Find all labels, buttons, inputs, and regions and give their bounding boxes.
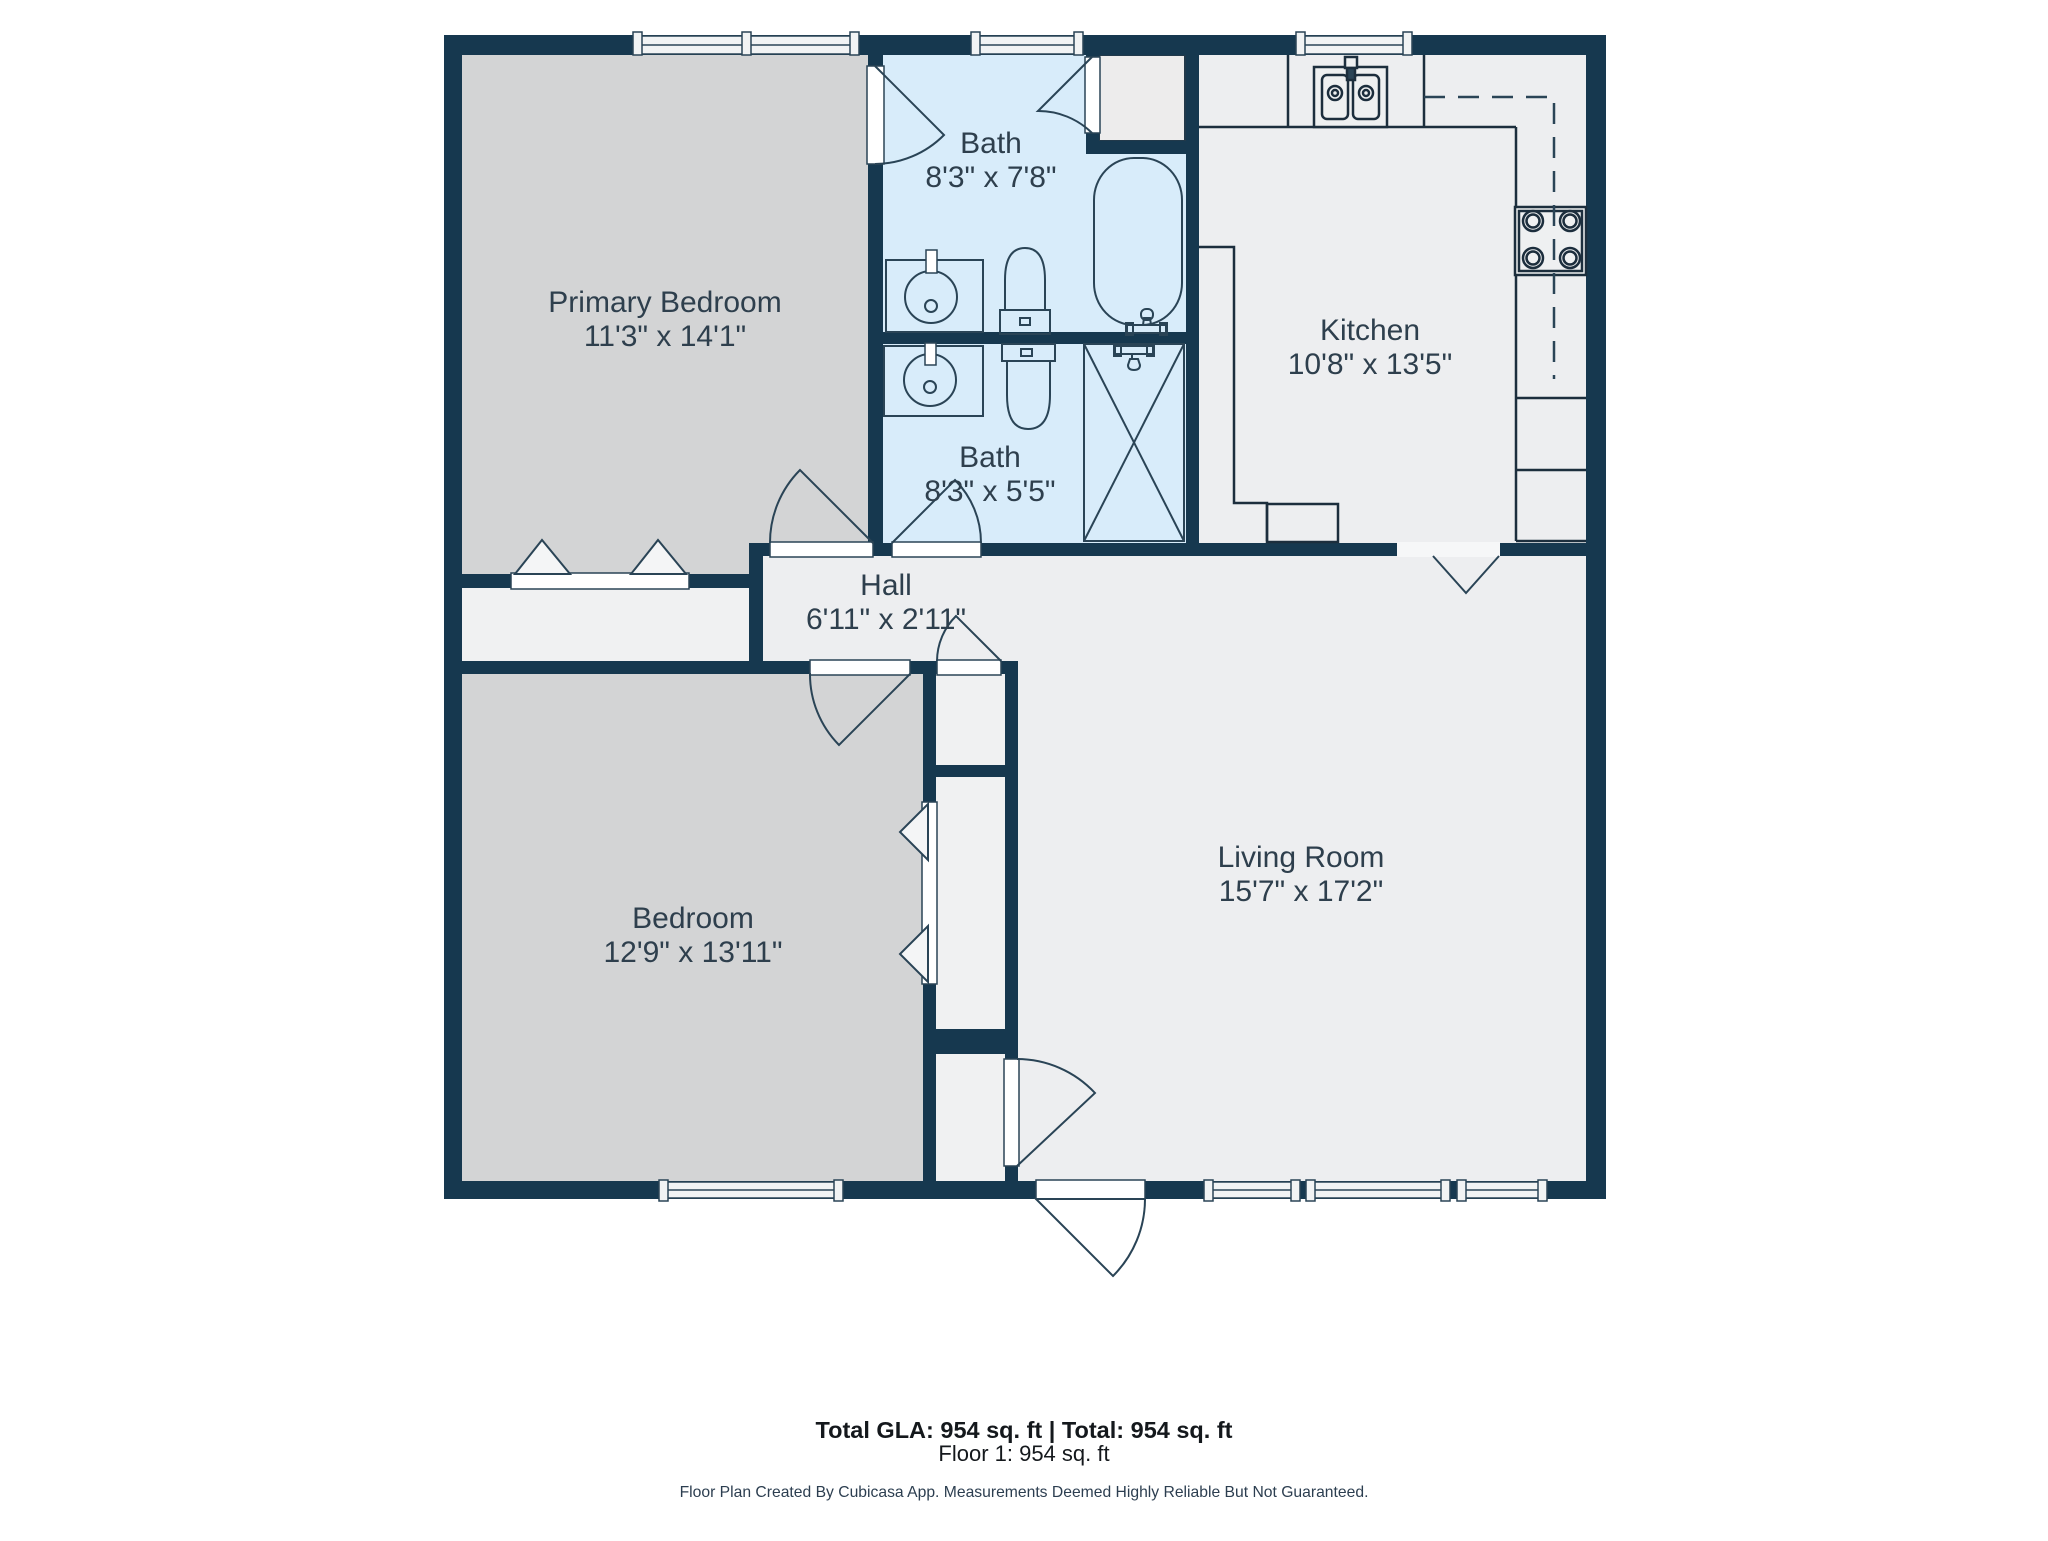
svg-text:11'3" x 14'1": 11'3" x 14'1" — [584, 320, 746, 353]
svg-text:Living Room: Living Room — [1218, 841, 1385, 874]
svg-text:Floor Plan Created By Cubicasa: Floor Plan Created By Cubicasa App. Meas… — [680, 1484, 1369, 1501]
svg-text:Primary Bedroom: Primary Bedroom — [548, 286, 781, 319]
svg-text:Kitchen: Kitchen — [1320, 314, 1420, 347]
svg-text:Hall: Hall — [860, 569, 912, 602]
svg-text:Total GLA: 954 sq. ft | Total:: Total GLA: 954 sq. ft | Total: 954 sq. f… — [816, 1417, 1233, 1443]
svg-text:8'3" x 5'5": 8'3" x 5'5" — [924, 475, 1055, 508]
svg-text:12'9" x 13'11": 12'9" x 13'11" — [604, 936, 783, 969]
svg-text:8'3" x 7'8": 8'3" x 7'8" — [925, 161, 1056, 194]
svg-text:Bath: Bath — [960, 127, 1022, 160]
svg-text:Floor 1: 954 sq. ft: Floor 1: 954 sq. ft — [938, 1441, 1109, 1466]
svg-text:15'7" x 17'2": 15'7" x 17'2" — [1219, 875, 1384, 908]
svg-text:Bedroom: Bedroom — [632, 902, 754, 935]
svg-text:Bath: Bath — [959, 441, 1021, 474]
svg-text:6'11" x 2'11": 6'11" x 2'11" — [806, 603, 966, 636]
svg-text:10'8" x 13'5": 10'8" x 13'5" — [1288, 348, 1453, 381]
